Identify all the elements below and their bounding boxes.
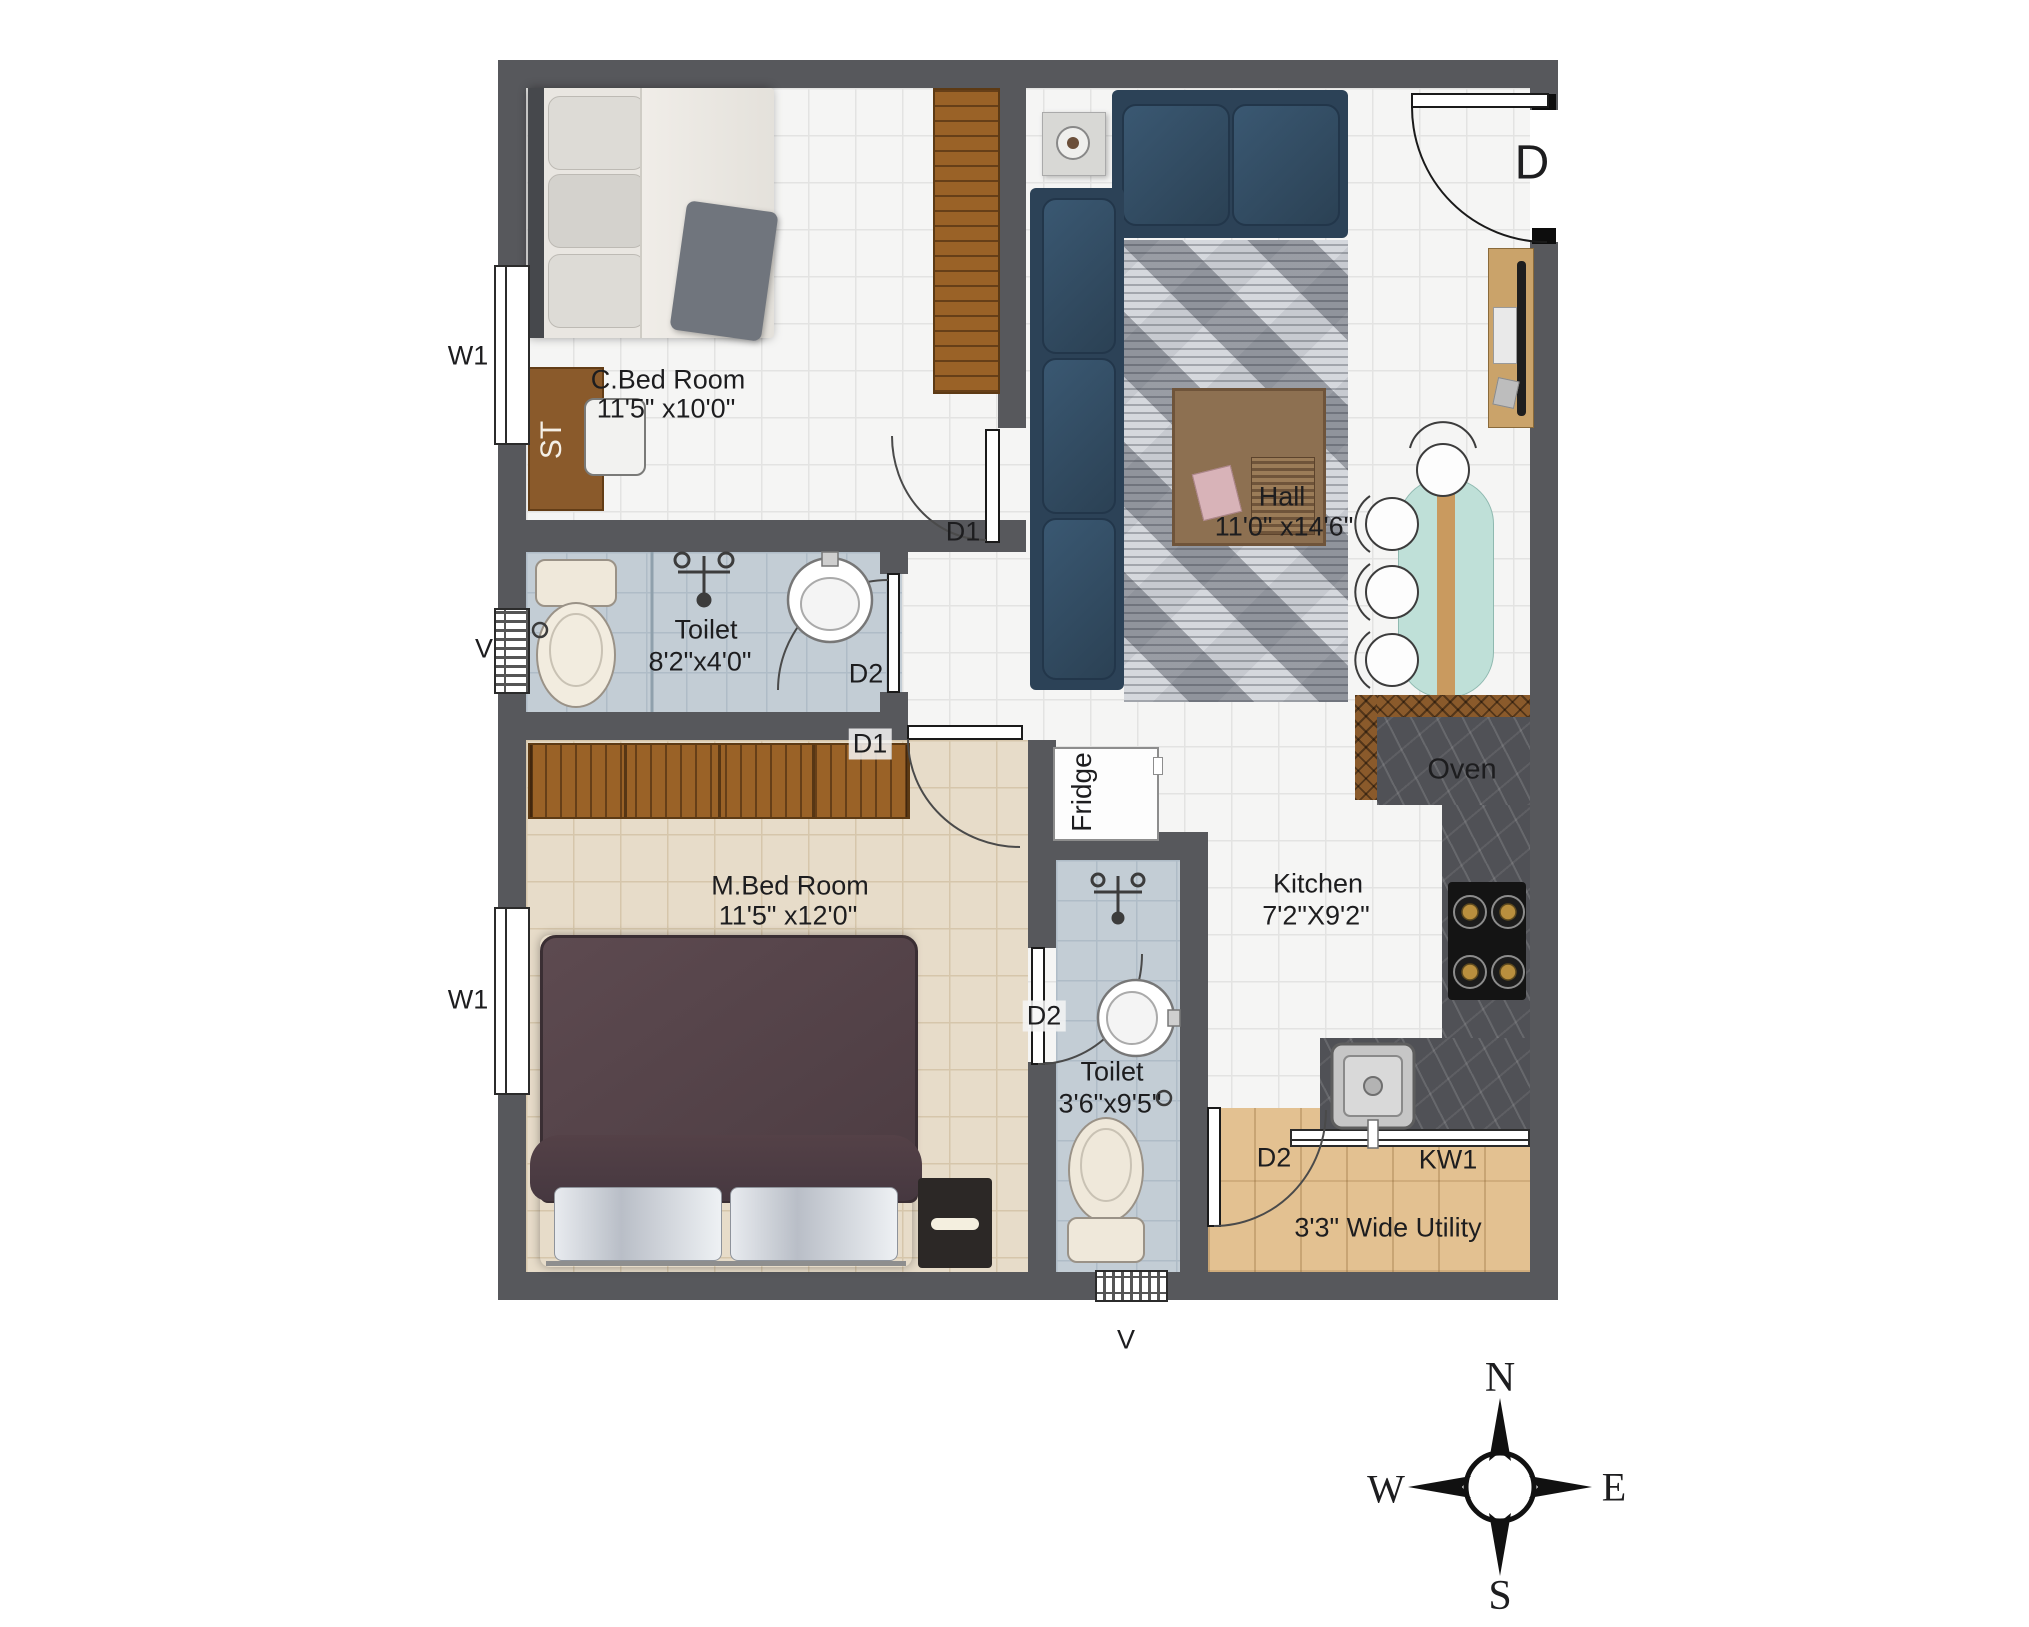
- room-label-cbed: C.Bed Room: [591, 365, 746, 396]
- room-dims-mbed: 11'5" x12'0": [719, 901, 858, 932]
- toilet2-wc-icon: [1068, 1118, 1144, 1262]
- tag-d2-toilet2: D2: [1023, 1001, 1066, 1032]
- tag-d1-cbed: D1: [946, 517, 981, 548]
- tag-oven: Oven: [1427, 754, 1496, 787]
- tag-v-toilet2: V: [1117, 1325, 1135, 1356]
- room-dims-toilet1: 8'2"x4'0": [648, 647, 751, 678]
- room-label-kitchen: Kitchen: [1273, 869, 1363, 900]
- compass-south-label: S: [1488, 1572, 1511, 1620]
- speaker-dot-icon: [1067, 137, 1079, 149]
- tag-fridge: Fridge: [1066, 752, 1098, 831]
- room-dims-toilet2: 3'6"x9'5": [1058, 1089, 1161, 1120]
- toilet2-sink-icon: [1098, 980, 1180, 1056]
- toilet2-shower-icon: [1092, 874, 1144, 923]
- toilet1-wc-icon: [536, 560, 616, 707]
- plan-vector-overlay: [0, 0, 2029, 1627]
- room-label-hall: Hall: [1259, 482, 1306, 513]
- compass-west-label: W: [1367, 1466, 1405, 1513]
- room-dims-hall: 11'0" x14'6": [1215, 512, 1354, 543]
- hob-burners-icon: [1454, 896, 1524, 988]
- tag-d2-utility: D2: [1257, 1143, 1292, 1174]
- toilet1-shower-icon: [675, 553, 733, 606]
- compass-east-label: E: [1602, 1464, 1626, 1511]
- tag-w1-cbed: W1: [448, 341, 489, 372]
- tag-w1-mbed: W1: [448, 985, 489, 1016]
- kitchen-sink-icon: [1332, 1044, 1414, 1148]
- compass-north-label: N: [1485, 1354, 1515, 1402]
- room-dims-cbed: 11'5" x10'0": [597, 394, 736, 425]
- floor-plan-canvas: C.Bed Room 11'5" x10'0" Hall 11'0" x14'6…: [0, 0, 2029, 1627]
- tag-d2-toilet1: D2: [849, 659, 884, 690]
- dining-chairs-icon: [1355, 422, 1476, 688]
- toilet1-sink-icon: [788, 552, 872, 642]
- room-label-mbed: M.Bed Room: [711, 871, 869, 902]
- tag-st: ST: [535, 421, 569, 459]
- room-dims-kitchen: 7'2"X9'2": [1262, 901, 1370, 932]
- tag-kw1: KW1: [1419, 1145, 1478, 1176]
- tag-entrance-door: D: [1515, 136, 1550, 191]
- room-label-toilet2: Toilet: [1080, 1057, 1143, 1088]
- compass-icon: [1408, 1398, 1592, 1576]
- tag-d1-mbed: D1: [849, 729, 892, 760]
- room-label-toilet1: Toilet: [674, 615, 737, 646]
- tag-v-toilet1: V: [475, 634, 493, 665]
- room-label-utility: 3'3" Wide Utility: [1294, 1213, 1481, 1244]
- door-d1-mbed-icon: [908, 726, 1022, 847]
